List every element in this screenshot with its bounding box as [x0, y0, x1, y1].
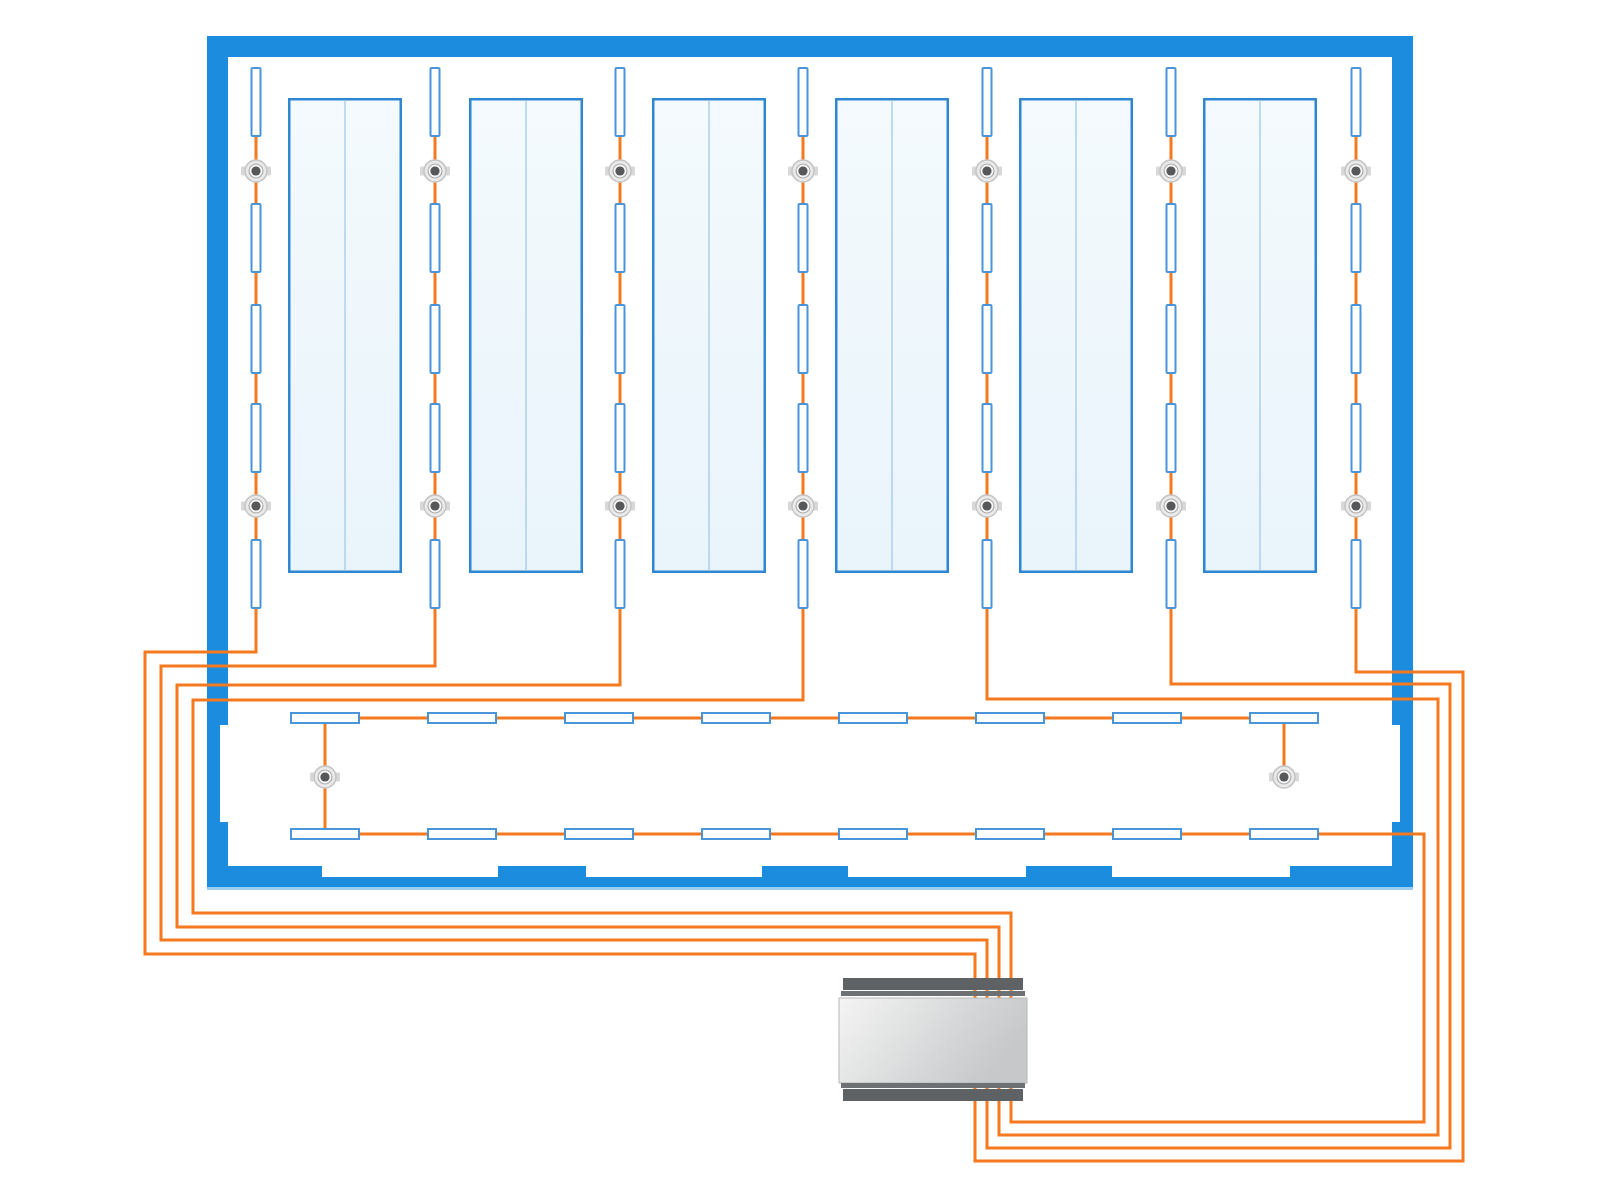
sensor-lens — [1166, 501, 1175, 510]
linear-luminaire — [1167, 305, 1176, 373]
linear-luminaire — [1352, 305, 1361, 373]
occupancy-sensor — [605, 160, 635, 182]
sensor-lens — [982, 501, 991, 510]
linear-luminaire — [983, 204, 992, 272]
controller-top-rail — [841, 991, 1025, 996]
wall-top — [207, 36, 1413, 57]
linear-luminaire — [616, 540, 625, 608]
linear-luminaire — [431, 540, 440, 608]
sensor-lens — [1351, 166, 1360, 175]
sensor-lens — [615, 166, 624, 175]
sensor-lens — [982, 166, 991, 175]
linear-luminaire — [431, 305, 440, 373]
linear-luminaire — [1167, 68, 1176, 136]
wall-zone-luminaire — [1250, 713, 1318, 723]
linear-luminaire — [1352, 404, 1361, 472]
sensor-lens — [798, 166, 807, 175]
wall-zone-luminaire — [1113, 713, 1181, 723]
occupancy-sensor — [420, 160, 450, 182]
occupancy-sensor — [310, 766, 340, 788]
wall-zone-luminaire — [839, 713, 907, 723]
linear-luminaire — [799, 68, 808, 136]
linear-luminaire — [616, 68, 625, 136]
occupancy-sensor — [1156, 495, 1186, 517]
wall-zone-luminaire — [565, 713, 633, 723]
sensor-lens — [320, 772, 329, 781]
wall-zone-luminaire — [291, 829, 359, 839]
sensor-lens — [430, 166, 439, 175]
occupancy-sensor — [1341, 495, 1371, 517]
wall-zone-luminaire — [428, 713, 496, 723]
wall-zone-luminaire — [976, 829, 1044, 839]
linear-luminaire — [252, 540, 261, 608]
linear-luminaire — [1352, 68, 1361, 136]
linear-luminaire — [1352, 204, 1361, 272]
linear-luminaire — [431, 68, 440, 136]
occupancy-sensor — [1341, 160, 1371, 182]
occupancy-sensor — [788, 160, 818, 182]
occupancy-sensor — [420, 495, 450, 517]
wall-opening — [322, 866, 498, 877]
controller-bottom-flange — [843, 1089, 1023, 1101]
linear-luminaire — [1167, 404, 1176, 472]
occupancy-sensor — [1156, 160, 1186, 182]
sensor-lens — [1351, 501, 1360, 510]
occupancy-sensor — [972, 160, 1002, 182]
linear-luminaire — [983, 404, 992, 472]
occupancy-sensor — [972, 495, 1002, 517]
controller-bottom-rail — [841, 1083, 1025, 1088]
linear-luminaire — [799, 540, 808, 608]
occupancy-sensor — [241, 495, 271, 517]
linear-luminaire — [252, 404, 261, 472]
linear-luminaire — [1352, 540, 1361, 608]
wall-opening — [1112, 866, 1290, 877]
wall-recess-right — [1392, 725, 1400, 822]
controller-top-flange — [843, 978, 1023, 990]
sensor-lens — [615, 501, 624, 510]
linear-luminaire — [983, 540, 992, 608]
sensor-lens — [251, 501, 260, 510]
sensor-lens — [1279, 772, 1288, 781]
wall-zone-luminaire — [1250, 829, 1318, 839]
linear-luminaire — [616, 204, 625, 272]
linear-luminaire — [616, 305, 625, 373]
wall-opening — [586, 866, 762, 877]
sensor-lens — [251, 166, 260, 175]
linear-luminaire — [983, 305, 992, 373]
linear-luminaire — [431, 404, 440, 472]
wall-zone-luminaire — [428, 829, 496, 839]
wall-zone-luminaire — [839, 829, 907, 839]
sensor-lens — [798, 501, 807, 510]
sensor-lens — [1166, 166, 1175, 175]
linear-luminaire — [799, 404, 808, 472]
floor-plan-diagram — [0, 0, 1600, 1200]
linear-luminaire — [799, 305, 808, 373]
linear-luminaire — [799, 204, 808, 272]
linear-luminaire — [252, 204, 261, 272]
linear-luminaire — [252, 68, 261, 136]
wall-zone-luminaire — [1113, 829, 1181, 839]
wall-opening — [848, 866, 1026, 877]
wall-zone-luminaire — [976, 713, 1044, 723]
occupancy-sensor — [1269, 766, 1299, 788]
wall-zone-luminaire — [291, 713, 359, 723]
linear-luminaire — [431, 204, 440, 272]
linear-luminaire — [252, 305, 261, 373]
linear-luminaire — [1167, 204, 1176, 272]
wall-recess-left — [220, 725, 228, 822]
linear-luminaire — [983, 68, 992, 136]
wall-zone-luminaire — [565, 829, 633, 839]
controller-body — [839, 998, 1027, 1083]
luminaires — [252, 68, 1361, 839]
wall-bottom-shadow — [207, 887, 1413, 890]
wall-zone-luminaire — [702, 713, 770, 723]
sensor-lens — [430, 501, 439, 510]
occupancy-sensor — [241, 160, 271, 182]
linear-luminaire — [616, 404, 625, 472]
linear-luminaire — [1167, 540, 1176, 608]
occupancy-sensor — [788, 495, 818, 517]
occupancy-sensor — [605, 495, 635, 517]
lighting-wiring-plan-svg — [0, 0, 1600, 1200]
wall-zone-luminaire — [702, 829, 770, 839]
